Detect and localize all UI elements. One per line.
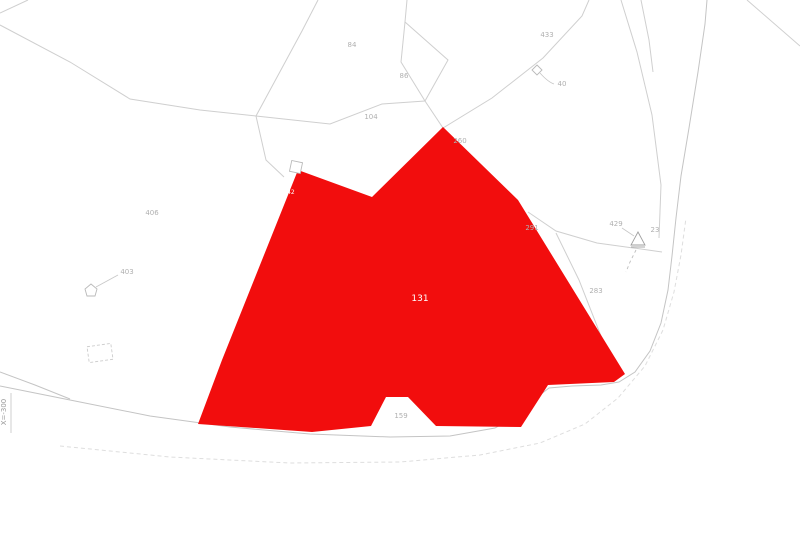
parcel-label-406: 406 [145, 209, 159, 217]
map-canvas[interactable]: 84861044334026040640329142923283159 131 … [0, 0, 800, 533]
highlighted-parcel-131[interactable] [198, 127, 625, 432]
leader-line [96, 275, 118, 287]
parcel-label-40: 40 [558, 80, 567, 88]
triangle-marker-icon [622, 228, 645, 272]
diamond-marker-icon [532, 65, 554, 84]
parcel-label-159: 159 [394, 412, 407, 420]
parcel-label-104: 104 [364, 113, 378, 121]
survey-dashes [626, 250, 636, 272]
parcel-label-23: 23 [651, 226, 660, 234]
dashed-plot-outline [87, 343, 113, 362]
parcel-label-433: 433 [540, 31, 553, 39]
leader-line [622, 228, 634, 236]
parcel-label-429: 429 [609, 220, 622, 228]
leader-line [540, 73, 554, 84]
cadastral-map-view: 84861044334026040640329142923283159 131 … [0, 0, 800, 533]
parcel-label-403: 403 [120, 268, 133, 276]
parcel-label-260: 260 [453, 137, 466, 145]
main-parcel-sub-number: 142 [283, 189, 295, 196]
main-parcel-number: 131 [411, 294, 428, 304]
building-icon [289, 160, 302, 173]
grid-coordinate-label: X=-300 [0, 399, 8, 426]
parcel-label-86: 86 [400, 72, 409, 80]
parcel-label-291: 291 [525, 224, 538, 232]
parcel-label-283: 283 [589, 287, 602, 295]
parcel-label-84: 84 [348, 41, 357, 49]
house-marker-icon [85, 275, 118, 296]
